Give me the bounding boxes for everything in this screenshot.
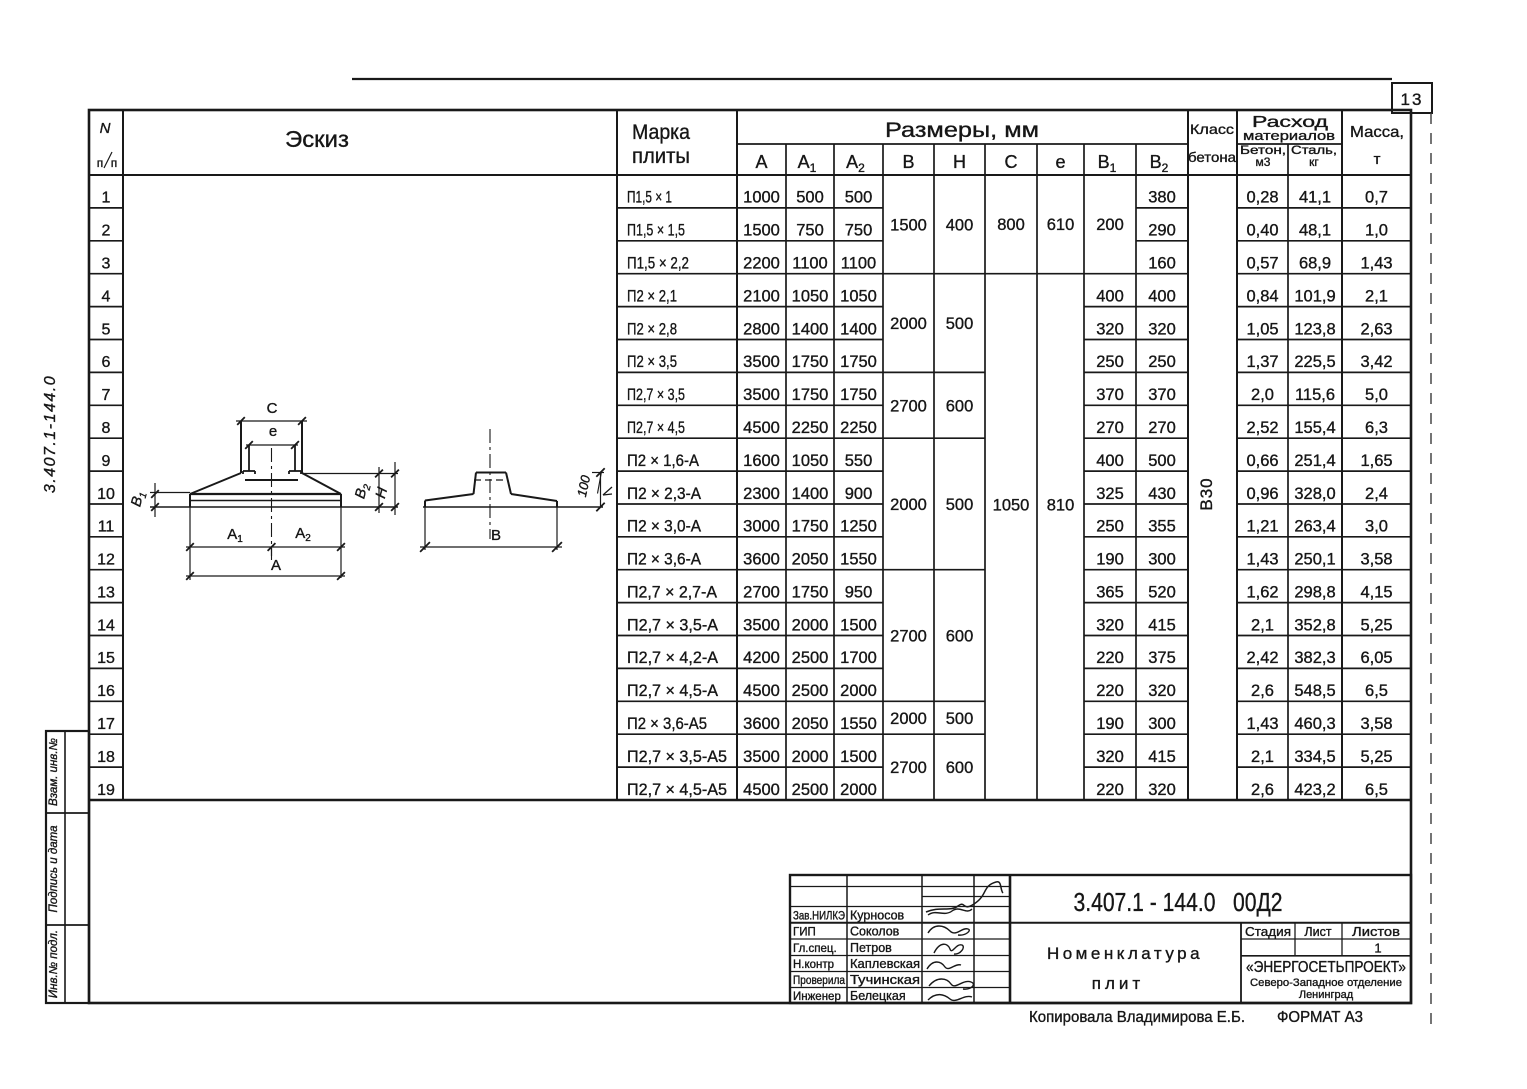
svg-text:1500: 1500: [840, 748, 877, 766]
svg-text:270: 270: [1148, 419, 1176, 437]
svg-text:320: 320: [1096, 616, 1124, 634]
svg-text:950: 950: [845, 583, 873, 601]
svg-text:П2 × 2,3-А: П2 × 2,3-А: [627, 485, 701, 503]
svg-text:250: 250: [1096, 518, 1124, 536]
svg-text:Ленинград: Ленинград: [1299, 989, 1354, 1001]
svg-text:1: 1: [1374, 941, 1381, 956]
svg-text:2,63: 2,63: [1360, 320, 1392, 338]
svg-text:610: 610: [1047, 216, 1075, 234]
svg-text:365: 365: [1096, 583, 1124, 601]
svg-text:1: 1: [102, 190, 111, 207]
svg-text:Масса,: Масса,: [1350, 124, 1404, 141]
svg-text:520: 520: [1148, 583, 1176, 601]
svg-text:Белецкая: Белецкая: [850, 989, 906, 1003]
svg-text:П1,5 × 1,5: П1,5 × 1,5: [627, 222, 685, 240]
svg-text:380: 380: [1148, 189, 1176, 207]
svg-text:500: 500: [796, 189, 824, 207]
svg-text:кг: кг: [1309, 155, 1319, 169]
svg-text:е: е: [1055, 152, 1065, 172]
svg-text:2: 2: [102, 223, 111, 240]
svg-text:328,0: 328,0: [1294, 485, 1335, 503]
svg-text:Эскиз: Эскиз: [285, 126, 349, 152]
svg-text:1050: 1050: [993, 497, 1030, 515]
svg-text:2200: 2200: [743, 255, 780, 273]
svg-text:6,5: 6,5: [1365, 781, 1388, 799]
svg-text:2000: 2000: [792, 748, 829, 766]
svg-text:т: т: [1374, 151, 1381, 168]
svg-text:325: 325: [1096, 485, 1124, 503]
svg-text:263,4: 263,4: [1294, 518, 1335, 536]
svg-text:0,7: 0,7: [1365, 189, 1388, 207]
svg-text:6,3: 6,3: [1365, 419, 1388, 437]
svg-text:П1,5 × 1: П1,5 × 1: [627, 189, 672, 207]
svg-text:3500: 3500: [743, 748, 780, 766]
svg-text:250: 250: [1096, 353, 1124, 371]
svg-text:16: 16: [97, 683, 115, 700]
svg-text:П2 × 3,0-А: П2 × 3,0-А: [627, 518, 701, 536]
svg-text:1,21: 1,21: [1246, 518, 1278, 536]
svg-text:3500: 3500: [743, 386, 780, 404]
svg-text:п: п: [97, 156, 104, 170]
svg-text:1500: 1500: [743, 222, 780, 240]
svg-text:68,9: 68,9: [1299, 255, 1331, 273]
svg-text:Листов: Листов: [1352, 925, 1400, 939]
svg-text:250,1: 250,1: [1294, 551, 1335, 569]
svg-text:1750: 1750: [840, 386, 877, 404]
svg-text:Инв.№ подл.: Инв.№ подл.: [48, 930, 60, 998]
svg-text:П2,7 × 2,7-А: П2,7 × 2,7-А: [627, 583, 717, 601]
svg-text:В: В: [491, 527, 501, 544]
svg-text:190: 190: [1096, 715, 1124, 733]
svg-text:300: 300: [1148, 551, 1176, 569]
svg-text:1000: 1000: [743, 189, 780, 207]
svg-text:1050: 1050: [840, 287, 877, 305]
svg-text:4500: 4500: [743, 419, 780, 437]
svg-text:4500: 4500: [743, 682, 780, 700]
svg-text:12: 12: [97, 552, 115, 569]
svg-text:101,9: 101,9: [1294, 287, 1335, 305]
svg-text:1750: 1750: [792, 518, 829, 536]
svg-text:N: N: [100, 120, 111, 137]
svg-text:11: 11: [98, 519, 115, 536]
svg-text:1600: 1600: [743, 452, 780, 470]
svg-text:370: 370: [1096, 386, 1124, 404]
svg-text:19: 19: [97, 782, 115, 799]
svg-text:3500: 3500: [743, 353, 780, 371]
svg-text:1400: 1400: [792, 320, 829, 338]
svg-text:плит: плит: [1092, 974, 1144, 993]
svg-text:750: 750: [845, 222, 873, 240]
svg-text:6: 6: [102, 354, 111, 371]
svg-text:1700: 1700: [840, 649, 877, 667]
svg-text:Копировала Владимирова Е.Б.: Копировала Владимирова Е.Б.: [1029, 1009, 1245, 1026]
svg-text:2500: 2500: [792, 649, 829, 667]
svg-text:1400: 1400: [840, 320, 877, 338]
svg-text:П2,7 × 4,5: П2,7 × 4,5: [627, 419, 685, 437]
svg-text:1750: 1750: [792, 353, 829, 371]
svg-text:415: 415: [1148, 616, 1176, 634]
svg-text:2500: 2500: [792, 781, 829, 799]
svg-text:3.407.1 - 144.0 00Д2: 3.407.1 - 144.0 00Д2: [1074, 887, 1283, 917]
svg-text:Тучинская: Тучинская: [850, 973, 920, 987]
svg-text:В: В: [902, 152, 914, 172]
svg-text:0,84: 0,84: [1246, 287, 1278, 305]
svg-text:Зав.НИЛКЭ: Зав.НИЛКЭ: [793, 911, 845, 923]
svg-text:220: 220: [1096, 781, 1124, 799]
svg-text:П2,7 × 3,5-А: П2,7 × 3,5-А: [627, 616, 718, 634]
svg-text:П2,7 × 3,5-А5: П2,7 × 3,5-А5: [627, 748, 727, 766]
svg-text:15: 15: [97, 650, 115, 667]
svg-text:10: 10: [97, 486, 115, 503]
svg-text:250: 250: [1148, 353, 1176, 371]
svg-text:8: 8: [102, 420, 111, 437]
svg-text:Каплевская: Каплевская: [850, 957, 920, 971]
svg-text:400: 400: [1148, 287, 1176, 305]
svg-text:2700: 2700: [890, 628, 927, 646]
svg-text:1750: 1750: [792, 583, 829, 601]
svg-text:1500: 1500: [890, 216, 927, 234]
svg-text:П2,7 × 4,5-А: П2,7 × 4,5-А: [627, 682, 718, 700]
svg-text:П2 × 2,1: П2 × 2,1: [627, 287, 677, 305]
svg-text:м3: м3: [1256, 155, 1271, 169]
svg-text:500: 500: [946, 710, 974, 728]
svg-text:Проверила: Проверила: [793, 975, 846, 987]
svg-text:115,6: 115,6: [1295, 386, 1335, 404]
svg-text:270: 270: [1096, 419, 1124, 437]
svg-text:6,05: 6,05: [1360, 649, 1392, 667]
svg-text:320: 320: [1148, 682, 1176, 700]
svg-text:2000: 2000: [840, 682, 877, 700]
svg-text:600: 600: [946, 628, 974, 646]
svg-text:2,1: 2,1: [1365, 287, 1388, 305]
svg-text:13: 13: [97, 584, 115, 601]
svg-text:320: 320: [1148, 320, 1176, 338]
svg-text:400: 400: [946, 216, 974, 234]
svg-text:1,0: 1,0: [1365, 222, 1388, 240]
svg-text:плиты: плиты: [632, 145, 690, 168]
svg-text:5: 5: [102, 321, 111, 338]
svg-text:Лист: Лист: [1304, 925, 1331, 939]
svg-text:13: 13: [1401, 90, 1424, 109]
svg-text:810: 810: [1047, 497, 1075, 515]
svg-text:18: 18: [97, 749, 115, 766]
svg-text:0,66: 0,66: [1246, 452, 1278, 470]
svg-text:3: 3: [102, 256, 111, 273]
svg-text:Петров: Петров: [850, 941, 892, 955]
svg-text:2000: 2000: [840, 781, 877, 799]
svg-text:П2 × 2,8: П2 × 2,8: [627, 320, 677, 338]
svg-text:С: С: [267, 400, 278, 417]
svg-text:5,0: 5,0: [1365, 386, 1388, 404]
svg-text:7: 7: [102, 387, 111, 404]
svg-text:1400: 1400: [792, 485, 829, 503]
svg-text:Класс: Класс: [1190, 121, 1234, 137]
svg-text:2800: 2800: [743, 320, 780, 338]
svg-text:1750: 1750: [840, 353, 877, 371]
svg-text:3000: 3000: [743, 518, 780, 536]
svg-text:Номенклатура: Номенклатура: [1047, 944, 1203, 963]
svg-text:Стадия: Стадия: [1245, 925, 1291, 939]
svg-text:9: 9: [102, 453, 111, 470]
svg-text:2050: 2050: [792, 551, 829, 569]
svg-text:Курносов: Курносов: [850, 909, 905, 923]
svg-text:375: 375: [1148, 649, 1176, 667]
svg-text:Н: Н: [953, 152, 966, 172]
svg-text:3,42: 3,42: [1360, 353, 1392, 371]
svg-text:1,43: 1,43: [1360, 255, 1392, 273]
svg-text:500: 500: [1148, 452, 1176, 470]
svg-text:2000: 2000: [890, 496, 927, 514]
svg-text:А: А: [271, 557, 281, 574]
svg-text:4200: 4200: [743, 649, 780, 667]
svg-text:320: 320: [1096, 320, 1124, 338]
svg-text:3.407.1-144.0: 3.407.1-144.0: [42, 375, 59, 493]
svg-text:423,2: 423,2: [1294, 781, 1335, 799]
svg-text:1100: 1100: [792, 255, 827, 273]
svg-text:2500: 2500: [792, 682, 829, 700]
svg-text:251,4: 251,4: [1294, 452, 1335, 470]
svg-text:1,37: 1,37: [1246, 353, 1278, 371]
svg-text:0,28: 0,28: [1246, 189, 1278, 207]
svg-text:430: 430: [1148, 485, 1176, 503]
svg-text:2700: 2700: [890, 397, 927, 415]
svg-text:41,1: 41,1: [1299, 189, 1331, 207]
svg-text:3500: 3500: [743, 616, 780, 634]
svg-text:548,5: 548,5: [1294, 682, 1335, 700]
svg-text:П2 × 1,6-А: П2 × 1,6-А: [627, 452, 699, 470]
svg-text:200: 200: [1096, 216, 1124, 234]
svg-text:бетона: бетона: [1188, 149, 1236, 165]
svg-text:2,42: 2,42: [1246, 649, 1278, 667]
svg-text:0,96: 0,96: [1246, 485, 1278, 503]
svg-text:1050: 1050: [792, 452, 829, 470]
svg-text:1550: 1550: [840, 551, 877, 569]
svg-text:5,25: 5,25: [1360, 748, 1392, 766]
svg-text:1,65: 1,65: [1360, 452, 1392, 470]
svg-text:1,43: 1,43: [1246, 551, 1278, 569]
svg-text:155,4: 155,4: [1294, 419, 1335, 437]
svg-text:6,5: 6,5: [1365, 682, 1388, 700]
svg-text:Взам. инв.№: Взам. инв.№: [48, 737, 60, 805]
svg-text:4,15: 4,15: [1360, 583, 1392, 601]
svg-text:1,43: 1,43: [1246, 715, 1278, 733]
svg-text:ГИП: ГИП: [793, 927, 816, 939]
svg-text:800: 800: [997, 216, 1025, 234]
svg-text:Северо-Западное отделение: Северо-Западное отделение: [1250, 977, 1402, 989]
svg-text:4500: 4500: [743, 781, 780, 799]
svg-text:Соколов: Соколов: [850, 925, 900, 939]
svg-text:123,8: 123,8: [1294, 320, 1335, 338]
svg-text:е: е: [269, 423, 277, 440]
svg-text:3600: 3600: [743, 551, 780, 569]
svg-text:П2 × 3,6-А: П2 × 3,6-А: [627, 551, 701, 569]
svg-text:2,6: 2,6: [1251, 682, 1274, 700]
svg-text:5,25: 5,25: [1360, 616, 1392, 634]
svg-text:2100: 2100: [743, 287, 780, 305]
svg-text:550: 550: [845, 452, 873, 470]
svg-text:600: 600: [946, 759, 974, 777]
svg-text:160: 160: [1148, 255, 1176, 273]
svg-text:220: 220: [1096, 682, 1124, 700]
svg-text:220: 220: [1096, 649, 1124, 667]
svg-text:1550: 1550: [840, 715, 877, 733]
svg-text:П2 × 3,5: П2 × 3,5: [627, 353, 677, 371]
svg-text:Подпись и дата: Подпись и дата: [48, 826, 60, 913]
svg-text:2000: 2000: [890, 315, 927, 333]
svg-text:2,1: 2,1: [1251, 748, 1274, 766]
svg-text:Размеры, мм: Размеры, мм: [885, 119, 1039, 142]
svg-text:320: 320: [1148, 781, 1176, 799]
svg-text:2,52: 2,52: [1246, 419, 1278, 437]
svg-text:А: А: [755, 152, 767, 172]
svg-text:1,62: 1,62: [1246, 583, 1278, 601]
svg-text:1,05: 1,05: [1246, 320, 1278, 338]
svg-text:48,1: 48,1: [1299, 222, 1331, 240]
svg-text:3,58: 3,58: [1360, 551, 1392, 569]
svg-text:355: 355: [1148, 518, 1176, 536]
svg-text:С: С: [1005, 152, 1018, 172]
svg-text:«ЭНЕРГОСЕТЬПРОЕКТ»: «ЭНЕРГОСЕТЬПРОЕКТ»: [1246, 959, 1406, 976]
svg-text:2250: 2250: [792, 419, 829, 437]
svg-text:1100: 1100: [841, 255, 876, 273]
svg-text:2,0: 2,0: [1251, 386, 1274, 404]
svg-text:400: 400: [1096, 287, 1124, 305]
svg-text:п: п: [111, 156, 118, 170]
svg-text:2,6: 2,6: [1251, 781, 1274, 799]
svg-text:334,5: 334,5: [1294, 748, 1335, 766]
svg-text:600: 600: [946, 397, 974, 415]
svg-text:500: 500: [845, 189, 873, 207]
svg-text:1500: 1500: [840, 616, 877, 634]
svg-text:2000: 2000: [792, 616, 829, 634]
svg-text:2,4: 2,4: [1365, 485, 1388, 503]
svg-text:ФОРМАТ А3: ФОРМАТ А3: [1277, 1009, 1363, 1026]
svg-text:415: 415: [1148, 748, 1176, 766]
svg-text:460,3: 460,3: [1294, 715, 1335, 733]
svg-text:П1,5 × 2,2: П1,5 × 2,2: [627, 255, 689, 273]
svg-text:352,8: 352,8: [1294, 616, 1335, 634]
svg-text:900: 900: [845, 485, 873, 503]
svg-text:В30: В30: [1197, 477, 1216, 510]
svg-text:2,1: 2,1: [1251, 616, 1274, 634]
svg-text:4: 4: [102, 288, 111, 305]
svg-text:2050: 2050: [792, 715, 829, 733]
svg-text:3,0: 3,0: [1365, 518, 1388, 536]
svg-text:2700: 2700: [743, 583, 780, 601]
svg-text:190: 190: [1096, 551, 1124, 569]
svg-text:П2 × 3,6-А5: П2 × 3,6-А5: [627, 715, 707, 733]
svg-text:2250: 2250: [840, 419, 877, 437]
svg-text:0,57: 0,57: [1246, 255, 1278, 273]
svg-text:П2,7 × 4,2-А: П2,7 × 4,2-А: [627, 649, 718, 667]
svg-text:3,58: 3,58: [1360, 715, 1392, 733]
svg-text:14: 14: [97, 617, 115, 634]
svg-text:400: 400: [1096, 452, 1124, 470]
svg-text:2700: 2700: [890, 759, 927, 777]
svg-text:382,3: 382,3: [1294, 649, 1335, 667]
svg-text:1750: 1750: [792, 386, 829, 404]
svg-text:500: 500: [946, 496, 974, 514]
svg-text:П2,7 × 4,5-А5: П2,7 × 4,5-А5: [627, 781, 727, 799]
svg-text:750: 750: [796, 222, 824, 240]
svg-text:500: 500: [946, 315, 974, 333]
svg-text:17: 17: [97, 716, 115, 733]
svg-text:2000: 2000: [890, 710, 927, 728]
svg-text:0,40: 0,40: [1246, 222, 1278, 240]
svg-text:Н.контр: Н.контр: [793, 959, 834, 971]
svg-text:225,5: 225,5: [1294, 353, 1335, 371]
svg-text:300: 300: [1148, 715, 1176, 733]
svg-text:2300: 2300: [743, 485, 780, 503]
svg-text:Гл.спец.: Гл.спец.: [793, 943, 837, 955]
svg-text:Инженер: Инженер: [793, 991, 841, 1003]
svg-text:П2,7 × 3,5: П2,7 × 3,5: [627, 386, 685, 404]
svg-text:1050: 1050: [792, 287, 829, 305]
svg-text:материалов: материалов: [1243, 128, 1335, 143]
svg-text:Марка: Марка: [632, 121, 690, 144]
svg-text:320: 320: [1096, 748, 1124, 766]
svg-text:298,8: 298,8: [1294, 583, 1335, 601]
svg-text:3600: 3600: [743, 715, 780, 733]
svg-text:370: 370: [1148, 386, 1176, 404]
svg-text:290: 290: [1148, 222, 1176, 240]
svg-text:1250: 1250: [840, 518, 877, 536]
